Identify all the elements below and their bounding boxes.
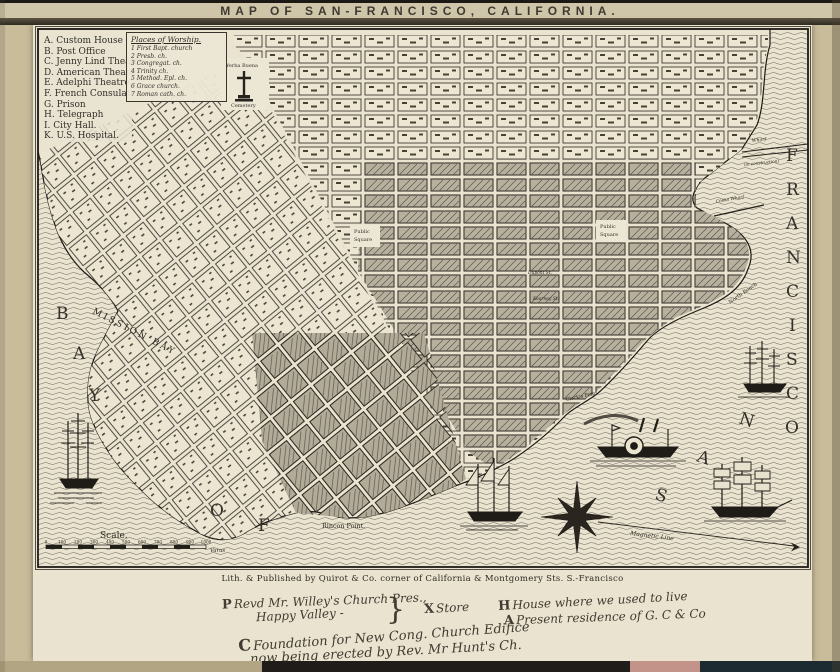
svg-text:R: R xyxy=(786,180,800,200)
legend-item: G. Prison xyxy=(44,100,132,111)
annotation-store: XStore xyxy=(424,600,470,617)
legend-item: F. French Consulate xyxy=(44,89,132,100)
svg-text:B: B xyxy=(56,304,69,324)
scale-unit: Varas xyxy=(210,548,225,554)
edge-segment-teal xyxy=(700,661,840,672)
places-of-worship-legend: Places of Worship. 1 First Bapt. church … xyxy=(126,32,227,102)
title-band-shadow xyxy=(0,18,840,25)
legend-item: H. Telegraph xyxy=(44,110,132,121)
svg-text:O: O xyxy=(210,501,224,521)
worship-item: 1 First Bapt. church xyxy=(131,45,223,53)
map-sheet: Yerba Buena Cemetery Public Square Publi… xyxy=(33,25,812,661)
worship-item: 7 Roman cath. ch. xyxy=(131,91,223,99)
svg-text:I: I xyxy=(789,316,796,336)
scanned-map-page: MAP OF SAN-FRANCISCO, CALIFORNIA. xyxy=(0,0,840,672)
svg-text:Public: Public xyxy=(600,224,616,230)
legend-item: C. Jenny Lind Theatre xyxy=(44,57,132,68)
rincon-point-label: Rincon Point. xyxy=(322,522,365,530)
svg-text:600: 600 xyxy=(138,540,146,545)
edge-segment-black xyxy=(262,661,630,672)
svg-text:0: 0 xyxy=(45,540,48,545)
annotation-brace: } xyxy=(386,592,405,627)
svg-text:900: 900 xyxy=(186,540,194,545)
publisher-imprint: Lith. & Published by Quirot & Co. corner… xyxy=(33,574,812,584)
annotation-symbol-h: H xyxy=(498,598,513,614)
public-square-west: Public Square xyxy=(350,225,380,247)
worship-item: 5 Method. Epl. ch. xyxy=(131,75,223,83)
legend-item: A. Custom House xyxy=(44,36,132,47)
svg-text:C: C xyxy=(786,282,799,302)
svg-text:100: 100 xyxy=(58,540,66,545)
svg-text:800: 800 xyxy=(170,540,178,545)
page-title: MAP OF SAN-FRANCISCO, CALIFORNIA. xyxy=(0,3,840,19)
svg-text:Square: Square xyxy=(600,232,618,238)
francisco-lettering: F R A N C I S C O xyxy=(785,146,801,438)
svg-text:Y: Y xyxy=(88,386,101,406)
svg-text:S: S xyxy=(786,350,798,370)
left-page-edge-shadow xyxy=(0,0,5,672)
yerba-buena-label: Yerba Buena xyxy=(225,63,258,69)
reference-legend: A. Custom House B. Post Office C. Jenny … xyxy=(44,36,132,142)
right-page-edge-shadow xyxy=(832,0,840,672)
worship-item: 4 Trinity ch. xyxy=(131,68,223,76)
public-square-east: Public Square xyxy=(596,220,626,242)
worship-item: 6 Grace church. xyxy=(131,83,223,91)
svg-text:400: 400 xyxy=(106,540,114,545)
svg-text:Public: Public xyxy=(354,229,370,235)
worship-item: 2 Presb. ch. xyxy=(131,53,223,61)
svg-text:C: C xyxy=(786,384,799,404)
kearney-st-label: Kearney St. xyxy=(532,297,559,302)
dupont-st-label: Dupont St. xyxy=(527,271,552,276)
cemetery-label: Cemetery xyxy=(231,103,256,109)
worship-item: 3 Congregat. ch. xyxy=(131,60,223,68)
legend-item: E. Adelphi Theatre xyxy=(44,78,132,89)
annotation-symbol-x: X xyxy=(424,602,437,618)
svg-text:F: F xyxy=(258,516,270,536)
svg-text:A: A xyxy=(72,344,86,364)
edge-segment-pink xyxy=(630,661,700,672)
edge-segment-tan xyxy=(0,661,262,672)
yerba-buena-cemetery: Yerba Buena Cemetery xyxy=(221,58,269,110)
legend-item: D. American Theatre xyxy=(44,68,132,79)
legend-item: B. Post Office xyxy=(44,47,132,58)
svg-text:500: 500 xyxy=(122,540,130,545)
svg-text:N: N xyxy=(786,248,801,268)
annotation-symbol-p: P xyxy=(222,597,234,612)
legend-item: I. City Hall. xyxy=(44,121,132,132)
page-bottom-edge xyxy=(0,661,840,672)
svg-text:300: 300 xyxy=(90,540,98,545)
svg-text:200: 200 xyxy=(74,540,82,545)
svg-text:O: O xyxy=(785,418,799,438)
svg-text:A: A xyxy=(785,214,799,234)
worship-legend-title: Places of Worship. xyxy=(131,35,223,44)
svg-text:F: F xyxy=(786,146,798,166)
svg-text:1000: 1000 xyxy=(201,540,212,545)
map-canvas: Yerba Buena Cemetery Public Square Publi… xyxy=(33,25,812,571)
svg-text:Square: Square xyxy=(354,237,372,243)
legend-item: K. U.S. Hospital. xyxy=(44,131,132,142)
svg-text:700: 700 xyxy=(154,540,162,545)
